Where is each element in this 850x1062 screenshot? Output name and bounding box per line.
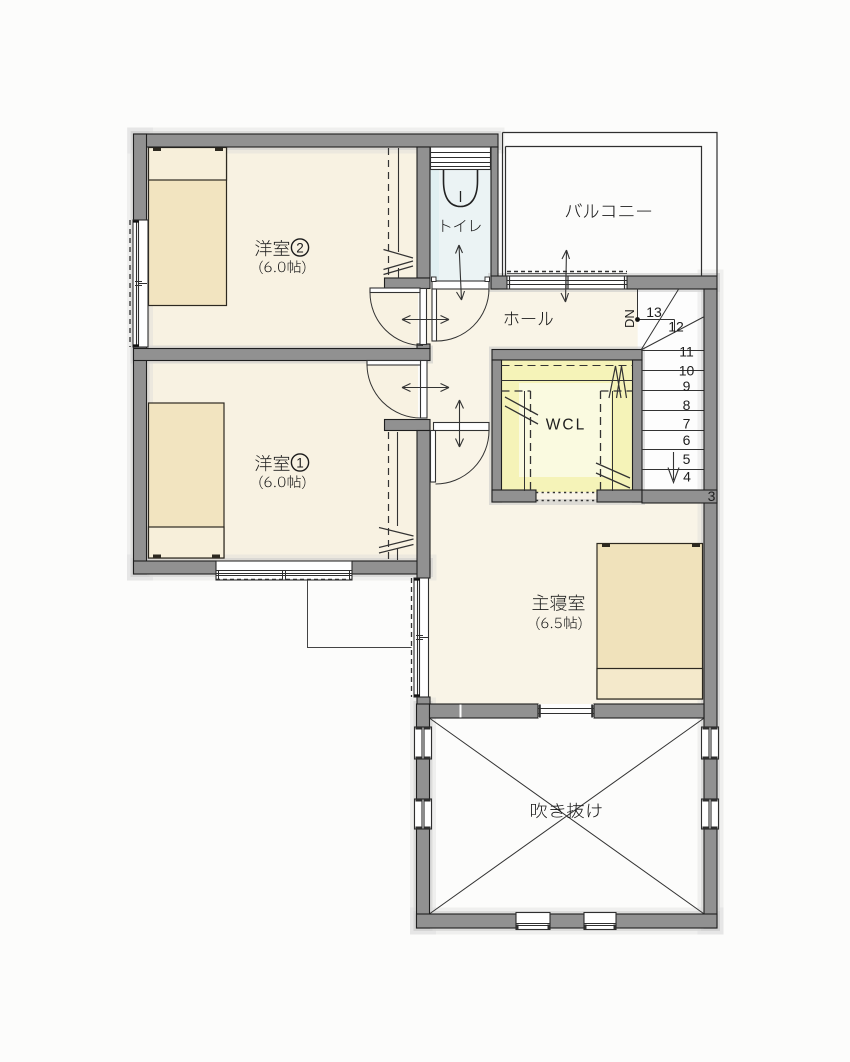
svg-text:7: 7 <box>683 416 691 432</box>
svg-text:9: 9 <box>683 378 691 394</box>
svg-text:5: 5 <box>683 451 691 467</box>
svg-text:3: 3 <box>708 488 716 504</box>
svg-text:13: 13 <box>646 304 662 320</box>
svg-text:11: 11 <box>679 344 694 360</box>
svg-text:8: 8 <box>683 397 691 413</box>
svg-text:WCL: WCL <box>546 417 586 434</box>
svg-text:2: 2 <box>296 241 304 256</box>
svg-text:1: 1 <box>296 456 304 471</box>
svg-text:4: 4 <box>683 469 691 485</box>
svg-text:12: 12 <box>668 319 684 335</box>
svg-text:6: 6 <box>683 432 691 448</box>
svg-text:10: 10 <box>679 363 695 379</box>
svg-text:DN: DN <box>622 309 637 328</box>
